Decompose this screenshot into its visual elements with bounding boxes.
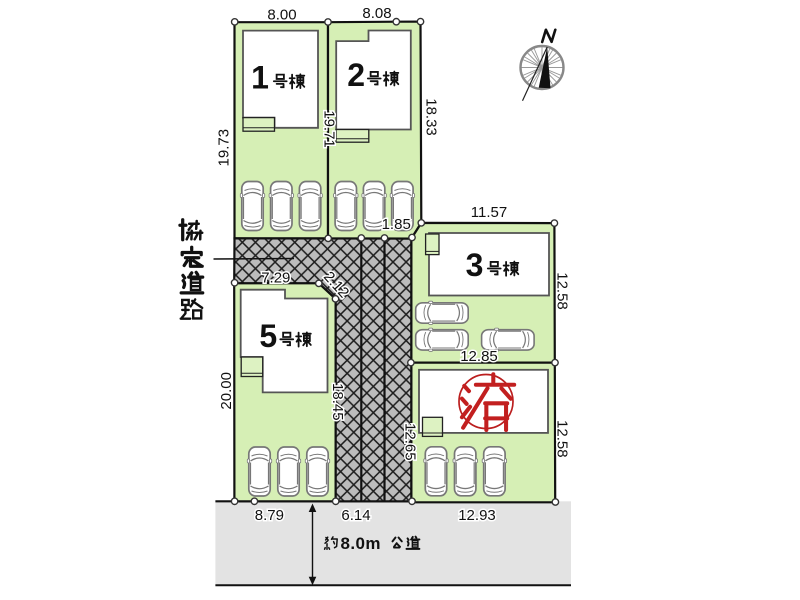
svg-text:18.45: 18.45 — [329, 383, 346, 421]
svg-text:18.33: 18.33 — [423, 98, 440, 136]
svg-text:6.14: 6.14 — [341, 507, 370, 524]
svg-text:2: 2 — [347, 57, 365, 93]
svg-text:12.58: 12.58 — [553, 420, 570, 458]
svg-text:12.58: 12.58 — [553, 272, 570, 310]
svg-text:3: 3 — [466, 247, 484, 283]
svg-text:8.0m: 8.0m — [341, 534, 381, 553]
svg-text:19.73: 19.73 — [215, 129, 232, 167]
svg-text:8.79: 8.79 — [255, 507, 284, 524]
svg-text:12.65: 12.65 — [402, 423, 419, 461]
svg-text:12.93: 12.93 — [458, 507, 496, 524]
svg-text:12.85: 12.85 — [460, 348, 498, 365]
svg-text:20.00: 20.00 — [218, 372, 235, 410]
svg-text:8.00: 8.00 — [267, 7, 296, 24]
svg-text:7.29: 7.29 — [261, 270, 290, 287]
svg-text:5: 5 — [259, 318, 277, 354]
svg-text:11.57: 11.57 — [471, 204, 507, 221]
svg-text:1: 1 — [251, 60, 269, 96]
svg-text:1.85: 1.85 — [382, 216, 411, 233]
svg-text:19.71: 19.71 — [321, 110, 338, 148]
svg-text:8.08: 8.08 — [362, 5, 391, 22]
